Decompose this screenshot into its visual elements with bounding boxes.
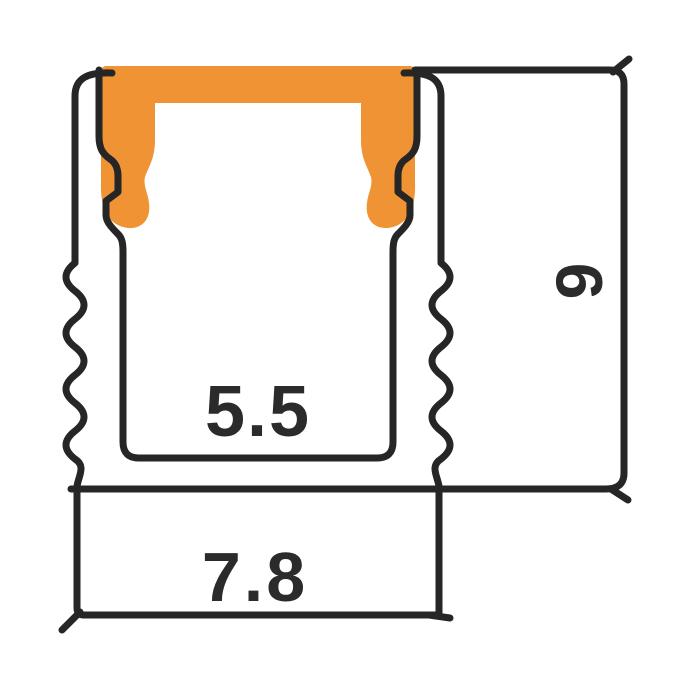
led-profile-cross-section: 5.5 7.8 9 bbox=[0, 0, 700, 700]
inner-width-label: 5.5 bbox=[205, 372, 311, 452]
corner-tick-bottom-left bbox=[62, 612, 80, 630]
base-width-label: 7.8 bbox=[202, 538, 308, 616]
height-label: 9 bbox=[542, 263, 616, 300]
corner-tick-bottom-right bbox=[611, 489, 628, 500]
corner-tick-width-box-right bbox=[429, 615, 450, 618]
drawing-canvas: 5.5 7.8 9 bbox=[0, 0, 700, 700]
base-line bbox=[71, 473, 624, 489]
dimension-labels: 5.5 7.8 9 bbox=[202, 263, 616, 616]
cover-diffuser bbox=[101, 66, 415, 228]
